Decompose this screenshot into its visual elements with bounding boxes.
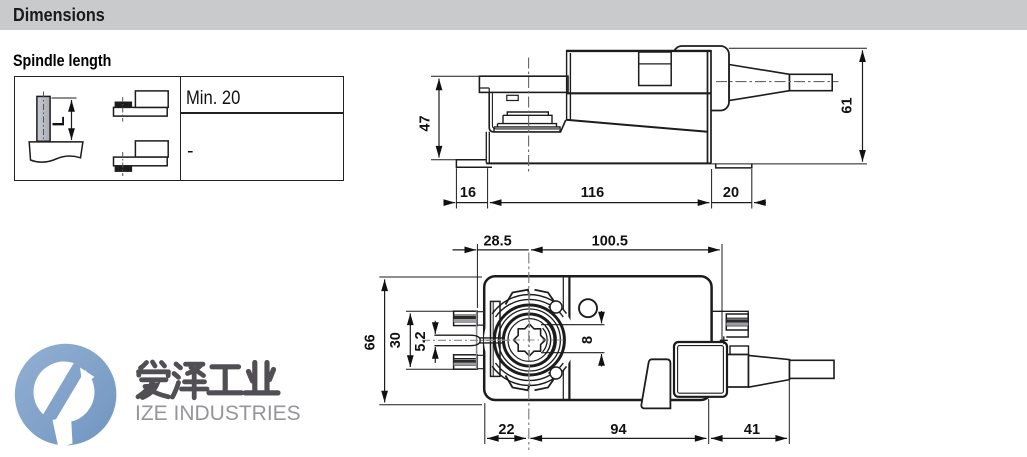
svg-text:8: 8 xyxy=(580,336,596,344)
svg-text:41: 41 xyxy=(744,422,760,438)
svg-text:L: L xyxy=(50,116,68,126)
svg-text:20: 20 xyxy=(723,185,739,201)
svg-text:28.5: 28.5 xyxy=(483,234,511,250)
svg-text:47: 47 xyxy=(418,115,434,131)
svg-text:100.5: 100.5 xyxy=(592,234,628,250)
svg-text:30: 30 xyxy=(388,332,404,348)
svg-text:16: 16 xyxy=(460,185,476,201)
svg-text:22: 22 xyxy=(498,422,514,438)
svg-text:61: 61 xyxy=(840,97,856,113)
svg-text:IZE INDUSTRIES: IZE INDUSTRIES xyxy=(135,402,301,425)
svg-text:5.2: 5.2 xyxy=(413,331,429,351)
svg-text:66: 66 xyxy=(362,334,378,350)
svg-text:116: 116 xyxy=(581,185,604,201)
svg-text:94: 94 xyxy=(610,422,626,438)
